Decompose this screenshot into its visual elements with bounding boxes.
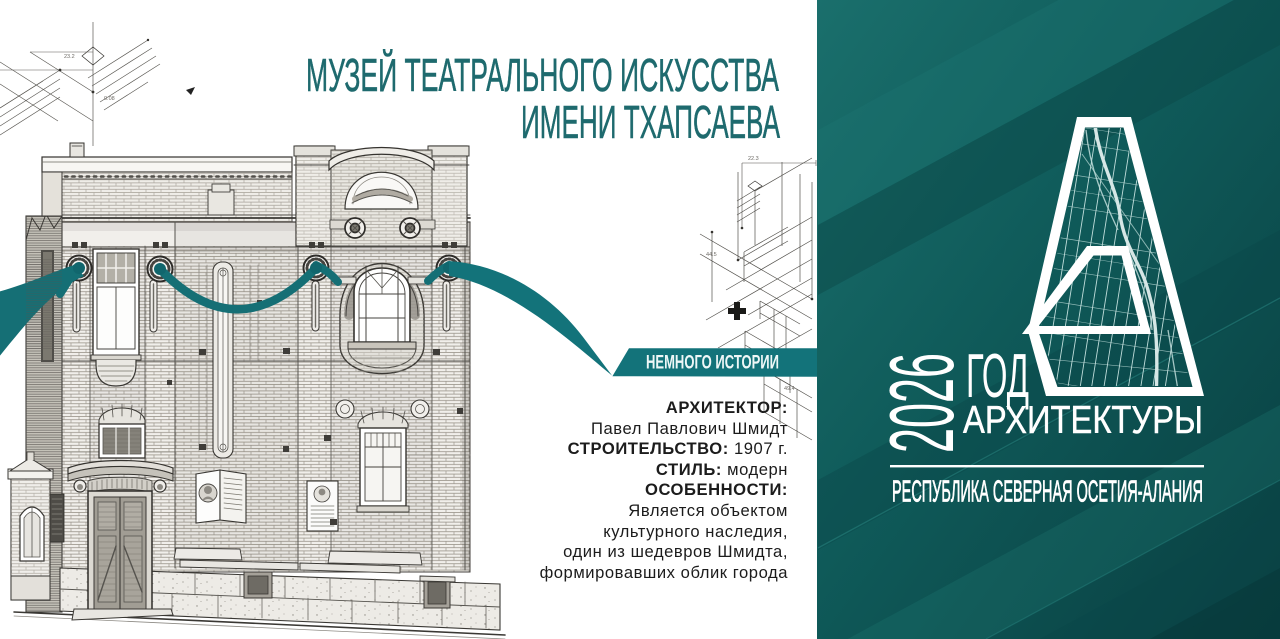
svg-text:ИМЕНИ ТХАПСАЕВА: ИМЕНИ ТХАПСАЕВА (521, 96, 780, 148)
svg-text:23.2: 23.2 (64, 54, 75, 60)
svg-text:АРХИТЕКТУРЫ: АРХИТЕКТУРЫ (963, 399, 1203, 442)
svg-text:АРХИТЕКТОР:: АРХИТЕКТОР: (666, 398, 788, 417)
svg-text:0.08: 0.08 (104, 96, 115, 102)
svg-text:22.3: 22.3 (748, 156, 759, 162)
svg-text:Является объектом: Является объектом (628, 501, 788, 520)
svg-text:49.4: 49.4 (784, 386, 795, 392)
svg-text:формировавших облик города: формировавших облик города (540, 563, 789, 582)
svg-text:РЕСПУБЛИКА СЕВЕРНАЯ ОСЕТИЯ-АЛА: РЕСПУБЛИКА СЕВЕРНАЯ ОСЕТИЯ-АЛАНИЯ (892, 474, 1203, 509)
svg-text:2026: 2026 (872, 353, 973, 453)
svg-text:ОСОБЕННОСТИ:: ОСОБЕННОСТИ: (645, 480, 788, 499)
svg-text:44.5: 44.5 (706, 252, 717, 258)
svg-text:Павел Павлович Шмидт: Павел Павлович Шмидт (591, 419, 788, 438)
svg-text:МУЗЕЙ ТЕАТРАЛЬНОГО ИСКУССТВА: МУЗЕЙ ТЕАТРАЛЬНОГО ИСКУССТВА (306, 49, 779, 101)
svg-text:культурного наследия,: культурного наследия, (603, 522, 788, 541)
svg-text:СТРОИТЕЛЬСТВО: 1907 г.: СТРОИТЕЛЬСТВО: 1907 г. (568, 439, 788, 458)
svg-text:один из шедевров Шмидта,: один из шедевров Шмидта, (563, 542, 788, 561)
svg-text:СТИЛЬ: модерн: СТИЛЬ: модерн (656, 460, 788, 479)
svg-text:НЕМНОГО ИСТОРИИ: НЕМНОГО ИСТОРИИ (646, 353, 779, 374)
